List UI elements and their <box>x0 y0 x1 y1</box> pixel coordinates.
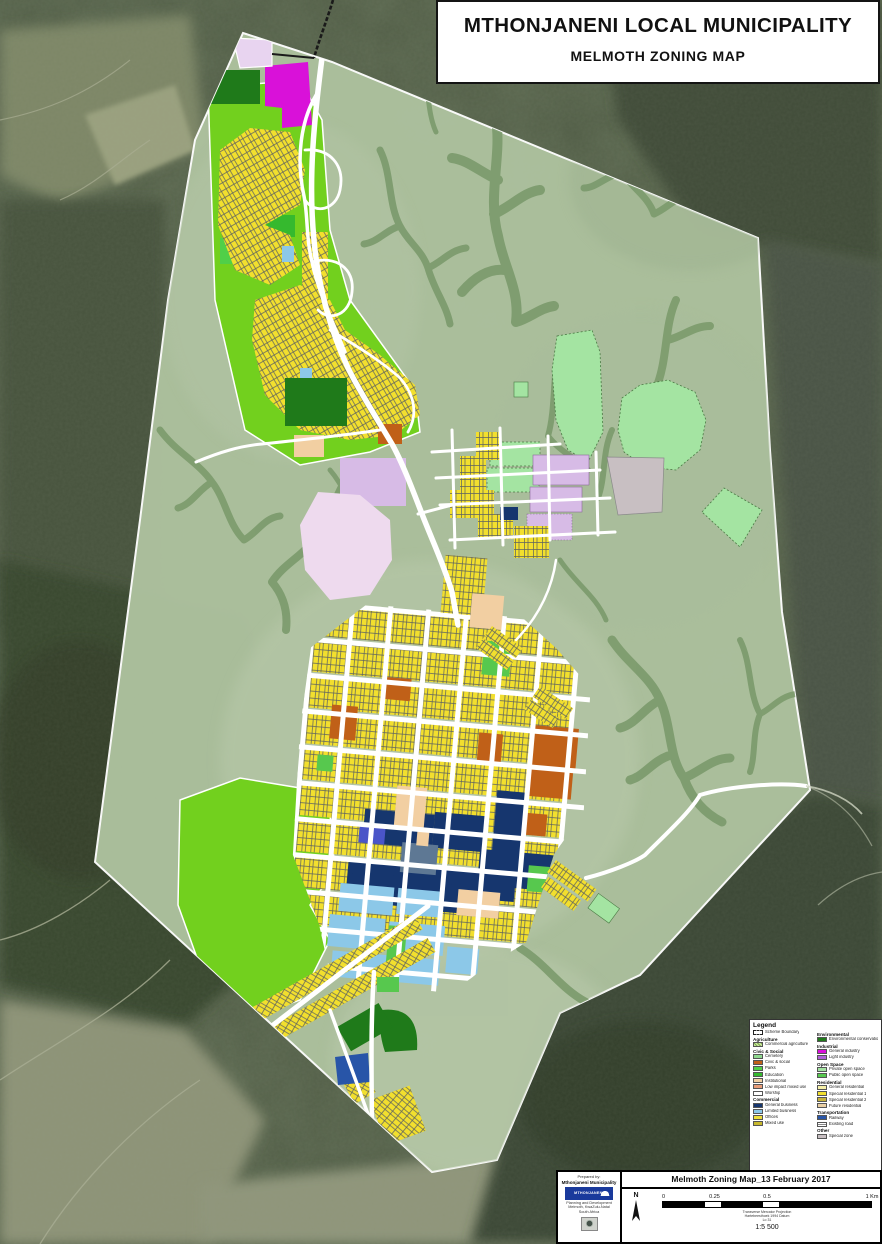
scale-tick-label: 1 Km <box>866 1194 879 1200</box>
lavender-parcel <box>233 38 272 68</box>
legend-item-label: Limited business <box>765 1109 796 1113</box>
legend-item: Mixed use <box>753 1121 814 1126</box>
legend-swatch <box>753 1121 763 1126</box>
legend-item: Education <box>753 1072 814 1077</box>
scale-ratio: 1:5 500 <box>662 1224 872 1231</box>
legend-item-label: Public open space <box>829 1073 863 1077</box>
legend-section-header: Civic & Social <box>753 1049 814 1054</box>
legend-item-label: Railway <box>829 1116 844 1120</box>
map-title: MTHONJANENI LOCAL MUNICIPALITY <box>438 14 878 38</box>
legend-item: General residential <box>817 1085 878 1090</box>
legend-swatch <box>817 1073 827 1078</box>
north-label: N <box>628 1192 644 1199</box>
legend-item-label: Environmental conservation <box>829 1037 878 1041</box>
legend-item: Existing road <box>817 1122 878 1127</box>
map-title-block: MTHONJANENI LOCAL MUNICIPALITY MELMOTH Z… <box>436 0 880 84</box>
legend-swatch <box>817 1091 827 1096</box>
legend-section-header: Other <box>817 1128 878 1133</box>
scale-tick-label: 0.5 <box>763 1194 771 1200</box>
legend-item: Offices <box>753 1115 814 1120</box>
legend-swatch <box>753 1078 763 1083</box>
legend-item-label: Special residential 1 <box>829 1092 866 1096</box>
legend-swatch <box>817 1067 827 1072</box>
contact-line: South Africa <box>558 1210 620 1215</box>
legend-item-label: Civic & social <box>765 1060 790 1064</box>
legend-swatch <box>817 1115 827 1120</box>
scale-bar-ticks: 00.250.51 Km <box>662 1194 872 1201</box>
legend-item: General industry <box>817 1049 878 1054</box>
map-sheet-panel: Melmoth Zoning Map_13 February 2017 N 00… <box>622 1172 880 1242</box>
contact-details: Planning and Development Melmoth, KwaZul… <box>558 1201 620 1215</box>
legend-item-label: Parks <box>765 1066 776 1070</box>
legend-item: Environmental conservation <box>817 1037 878 1042</box>
legend-swatch <box>817 1037 827 1042</box>
municipality-logo-text: MTHONJANENI <box>574 1191 604 1195</box>
emblem-logo <box>581 1217 598 1231</box>
legend-swatch <box>753 1091 763 1096</box>
north-arrow-icon <box>628 1199 644 1223</box>
legend-item: General business <box>753 1103 814 1108</box>
legend-column: EnvironmentalEnvironmental conservationI… <box>817 1030 878 1140</box>
scale-tick-label: 0.25 <box>709 1194 720 1200</box>
projection-line: Lo 31 <box>662 1218 872 1222</box>
legend-swatch <box>817 1097 827 1102</box>
legend-section-header: Commercial <box>753 1097 814 1102</box>
legend-columns: Scheme BoundaryAgricultureCommercial agr… <box>753 1030 878 1140</box>
legend-section-header: Transportation <box>817 1110 878 1115</box>
legend-swatch <box>753 1060 763 1065</box>
legend-item-label: Commercial agriculture <box>765 1042 808 1046</box>
legend-item-label: Future residential <box>829 1104 861 1108</box>
legend-item-label: General business <box>765 1103 798 1107</box>
legend-item-label: Existing road <box>829 1122 853 1126</box>
legend-swatch <box>817 1049 827 1054</box>
projection-info: Transverse Mercator Projection Hartebees… <box>662 1210 872 1223</box>
legend-swatch <box>753 1042 763 1047</box>
map-legend: Legend Scheme BoundaryAgricultureCommerc… <box>749 1019 882 1172</box>
legend-swatch <box>817 1122 827 1127</box>
legend-item: Low impact mixed use <box>753 1084 814 1089</box>
legend-item: Cemetery <box>753 1054 814 1059</box>
legend-swatch <box>817 1134 827 1139</box>
map-subtitle: MELMOTH ZONING MAP <box>438 48 878 64</box>
legend-swatch <box>753 1109 763 1114</box>
legend-swatch <box>753 1066 763 1071</box>
legend-item: Future residential <box>817 1103 878 1108</box>
scale-bar-track <box>662 1201 872 1208</box>
legend-swatch <box>753 1054 763 1059</box>
legend-column: Scheme BoundaryAgricultureCommercial agr… <box>753 1030 814 1140</box>
north-arrow: N <box>628 1192 644 1228</box>
legend-section-header: Agriculture <box>753 1037 814 1042</box>
legend-item: Light industry <box>817 1055 878 1060</box>
legend-item: Institutional <box>753 1078 814 1083</box>
legend-item: Worship <box>753 1091 814 1096</box>
map-info-bar: Prepared by: Mthonjaneni Municipality MT… <box>556 1170 882 1244</box>
legend-item: Limited business <box>753 1109 814 1114</box>
legend-swatch <box>753 1103 763 1108</box>
legend-item-label: Cemetery <box>765 1054 783 1058</box>
legend-item: Special residential 1 <box>817 1091 878 1096</box>
legend-section-header: Industrial <box>817 1044 878 1049</box>
prepared-by-label: Prepared by: <box>558 1174 620 1179</box>
municipality-logo: MTHONJANENI <box>565 1187 613 1200</box>
legend-item-label: Private open space <box>829 1067 865 1071</box>
legend-item-label: Worship <box>765 1091 780 1095</box>
legend-swatch <box>817 1103 827 1108</box>
legend-item-label: Institutional <box>765 1079 786 1083</box>
legend-item: Commercial agriculture <box>753 1042 814 1047</box>
legend-swatch <box>753 1115 763 1120</box>
legend-item-label: Mixed use <box>765 1121 784 1125</box>
zoning-map-page: MTHONJANENI LOCAL MUNICIPALITY MELMOTH Z… <box>0 0 882 1244</box>
legend-item-label: Scheme Boundary <box>765 1030 799 1034</box>
legend-item-label: Light industry <box>829 1055 854 1059</box>
plantation-block <box>285 378 347 426</box>
legend-item: Railway <box>817 1115 878 1120</box>
legend-swatch <box>753 1072 763 1077</box>
scale-tick-label: 0 <box>662 1194 665 1200</box>
scale-bar: 00.250.51 Km Transverse Mercator Project… <box>662 1194 872 1231</box>
legend-section-header: Environmental <box>817 1032 878 1037</box>
legend-item: Parks <box>753 1066 814 1071</box>
legend-item-label: Special residential 2 <box>829 1098 866 1102</box>
legend-item-label: General residential <box>829 1085 864 1089</box>
legend-item: Special zone <box>817 1134 878 1139</box>
legend-item: Scheme Boundary <box>753 1030 814 1035</box>
legend-item: Special residential 2 <box>817 1097 878 1102</box>
legend-swatch <box>753 1030 763 1035</box>
prepared-by-name: Mthonjaneni Municipality <box>558 1180 620 1185</box>
legend-item-label: Low impact mixed use <box>765 1085 806 1089</box>
legend-item-label: Offices <box>765 1115 778 1119</box>
legend-swatch <box>817 1085 827 1090</box>
legend-item: Private open space <box>817 1067 878 1072</box>
map-sheet-title: Melmoth Zoning Map_13 February 2017 <box>622 1172 880 1189</box>
legend-item: Public open space <box>817 1073 878 1078</box>
legend-item-label: General industry <box>829 1049 860 1053</box>
legend-item-label: Education <box>765 1073 784 1077</box>
legend-swatch <box>753 1084 763 1089</box>
legend-title: Legend <box>753 1022 878 1029</box>
legend-section-header: Open Space <box>817 1062 878 1067</box>
legend-item-label: Special zone <box>829 1134 853 1138</box>
legend-item: Civic & social <box>753 1060 814 1065</box>
legend-section-header: Residential <box>817 1080 878 1085</box>
legend-swatch <box>817 1055 827 1060</box>
prepared-by-panel: Prepared by: Mthonjaneni Municipality MT… <box>558 1172 622 1242</box>
